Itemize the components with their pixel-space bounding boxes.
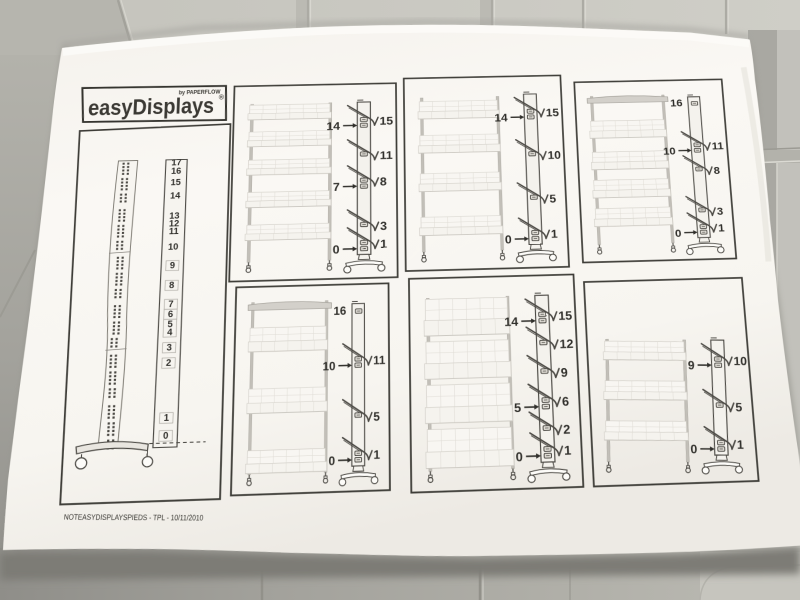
svg-text:0: 0 [675,228,682,240]
svg-text:16: 16 [333,305,346,318]
svg-text:10: 10 [168,241,179,252]
svg-text:3: 3 [166,342,172,353]
svg-text:14: 14 [326,121,340,133]
svg-text:1: 1 [564,445,572,459]
svg-text:0: 0 [690,443,697,456]
svg-text:9: 9 [170,260,176,271]
svg-text:10: 10 [733,355,747,368]
svg-text:4: 4 [167,327,173,338]
svg-text:0: 0 [328,455,335,469]
svg-text:5: 5 [549,193,556,205]
svg-text:by PAPERFLOW: by PAPERFLOW [179,90,222,97]
svg-text:8: 8 [713,165,720,177]
svg-text:12: 12 [559,338,573,351]
svg-text:14: 14 [494,113,508,125]
svg-text:1: 1 [718,222,725,234]
svg-text:15: 15 [170,177,181,187]
svg-text:2: 2 [563,424,571,438]
svg-text:1: 1 [551,229,558,241]
svg-text:0: 0 [333,244,340,256]
svg-text:3: 3 [380,221,387,233]
svg-text:0: 0 [163,430,169,441]
svg-text:3: 3 [716,206,723,218]
svg-text:6: 6 [562,396,570,409]
svg-text:15: 15 [558,310,573,323]
svg-text:14: 14 [504,316,519,329]
svg-text:11: 11 [711,141,724,153]
svg-text:11: 11 [373,354,385,368]
svg-text:0: 0 [505,234,512,246]
svg-text:15: 15 [380,116,394,128]
svg-text:11: 11 [380,150,394,162]
svg-text:5: 5 [373,410,380,424]
svg-text:10: 10 [547,150,561,162]
svg-text:easyDisplays: easyDisplays [87,92,214,120]
svg-text:8: 8 [380,176,388,188]
svg-text:10: 10 [323,360,336,374]
svg-text:11: 11 [169,226,179,237]
svg-text:1: 1 [373,448,380,462]
svg-text:16: 16 [670,98,683,110]
svg-text:9: 9 [561,367,569,380]
svg-text:1: 1 [737,439,744,452]
svg-text:16: 16 [171,166,182,176]
svg-text:5: 5 [735,401,742,414]
svg-text:1: 1 [164,412,170,423]
svg-text:8: 8 [169,280,175,291]
svg-text:9: 9 [688,360,695,373]
svg-text:NOTEASYDISPLAYSPIEDS - TPL - 1: NOTEASYDISPLAYSPIEDS - TPL - 10/11/2010 [63,514,203,523]
svg-text:0: 0 [515,451,523,465]
svg-text:7: 7 [333,182,340,194]
svg-text:1: 1 [380,239,388,251]
svg-text:10: 10 [663,146,676,158]
svg-text:5: 5 [514,402,522,415]
svg-text:14: 14 [170,190,181,200]
svg-text:15: 15 [546,107,560,119]
svg-text:2: 2 [166,357,172,368]
